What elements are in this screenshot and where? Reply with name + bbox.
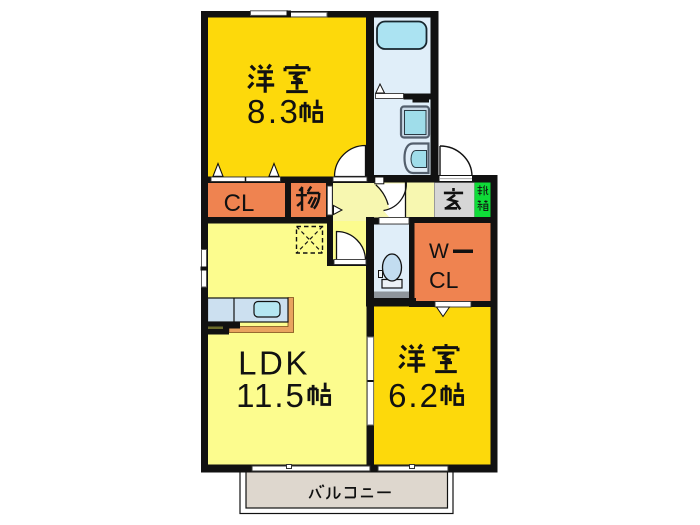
svg-text:11.5: 11.5 — [236, 377, 306, 414]
svg-text:8.3: 8.3 — [247, 93, 300, 130]
svg-text:W: W — [429, 240, 449, 263]
svg-text:LDK: LDK — [238, 345, 310, 382]
svg-text:6.2: 6.2 — [388, 377, 440, 414]
svg-text:CL: CL — [224, 190, 255, 217]
svg-text:CL: CL — [429, 267, 459, 293]
